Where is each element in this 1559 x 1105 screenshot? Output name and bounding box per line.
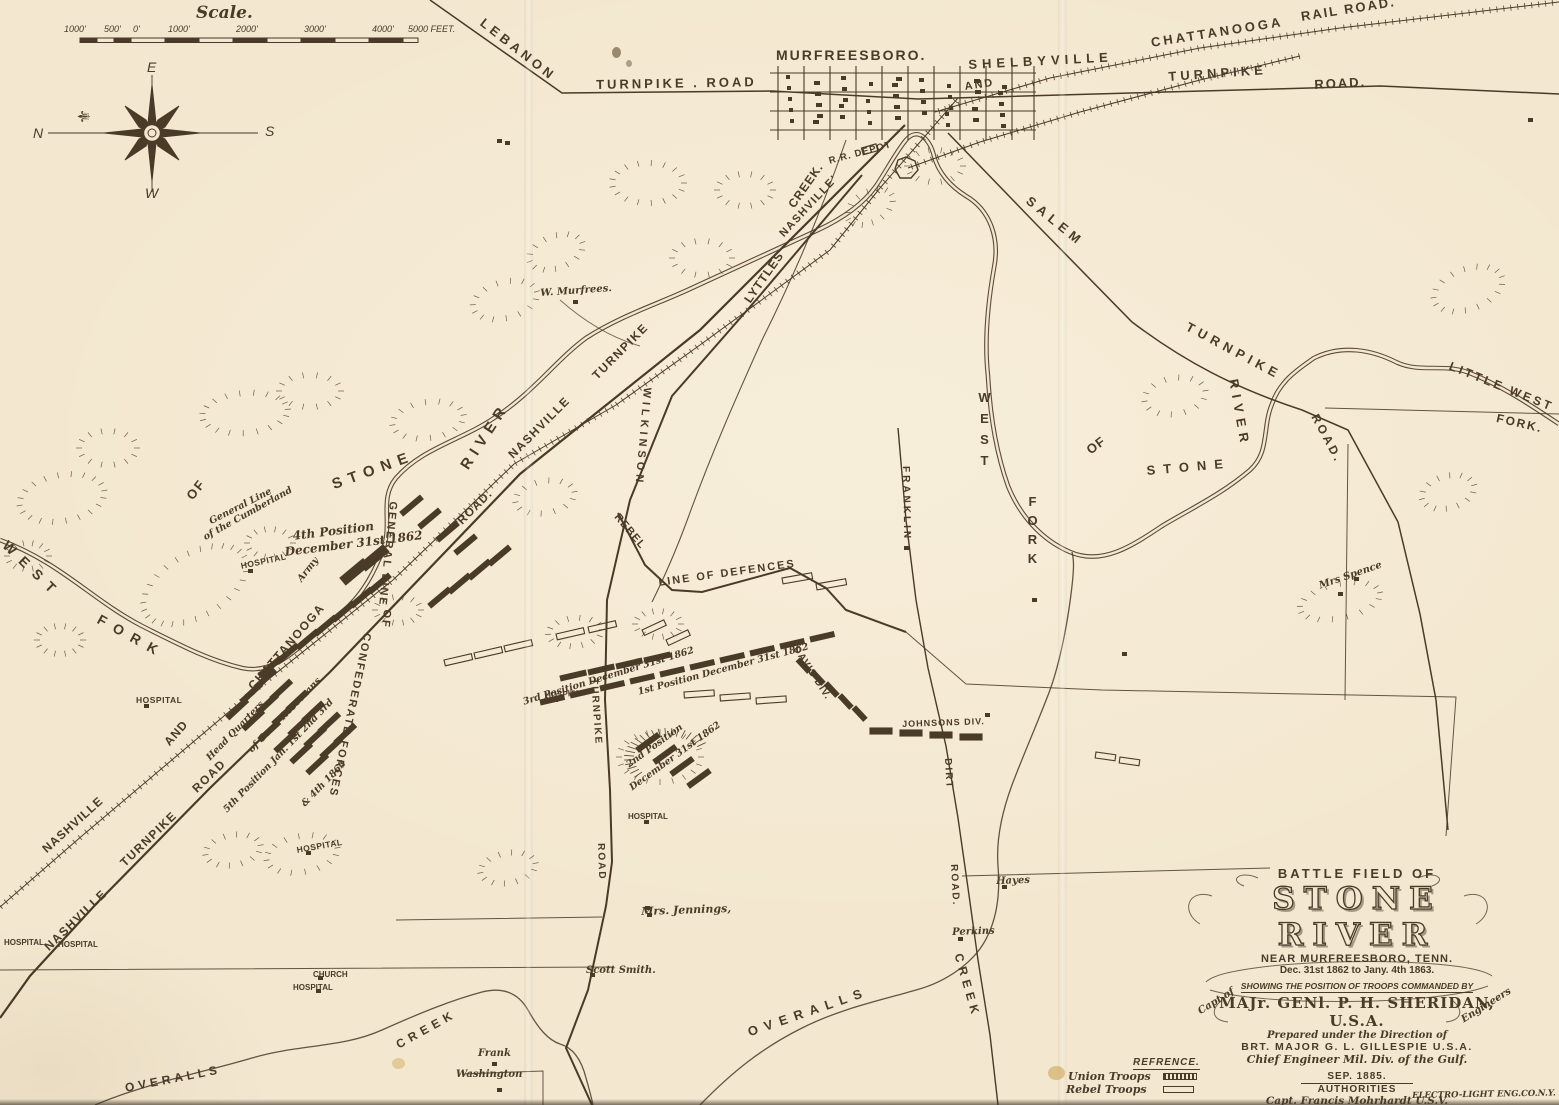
- label-turnpike-road-west: TURNPIKE . ROAD: [596, 75, 757, 91]
- engraver-credit: ELECTRO-LIGHT ENG.CO.N.Y.: [1412, 1089, 1556, 1100]
- label-franklin-road: FRANKLIN: [900, 466, 911, 541]
- map-title: STONE RIVER: [1192, 881, 1522, 953]
- label-dirt-road-1: DIRT: [942, 758, 954, 790]
- stone-river-battle-map: Scale. 1000' 500' 0' 1000' 2000' 3000' 4…: [0, 0, 1559, 1105]
- compass-rose: [48, 75, 258, 192]
- label-west-fork-right-2: FORK: [1026, 494, 1039, 570]
- title-chief-engineer: Chief Engineer Mil. Div. of the Gulf.: [1192, 1053, 1522, 1066]
- scale-bar-drawing: [80, 38, 418, 43]
- title-prepared: Prepared under the Direction of: [1192, 1030, 1522, 1041]
- legend-title: REFRENCE.: [1133, 1058, 1200, 1070]
- label-shelby-road: ROAD.: [1314, 75, 1366, 91]
- scale-tick: 0': [133, 25, 140, 34]
- label-frank-washington-1: Frank: [478, 1049, 511, 1059]
- label-hospital: HOSPITAL: [293, 984, 333, 992]
- label-hospital: HOSPITAL: [4, 939, 44, 947]
- scale-tick: 3000': [304, 25, 326, 34]
- label-hospital: HOSPITAL: [58, 941, 98, 949]
- scale-tick: 500': [104, 25, 121, 34]
- label-murfreesboro: MURFREESBORO.: [776, 48, 926, 62]
- scale-title: Scale.: [196, 5, 253, 22]
- compass-west-label: W: [145, 186, 158, 200]
- label-frank-washington-2: Washington: [456, 1070, 522, 1080]
- label-scott-smith-house: Scott Smith.: [586, 966, 656, 976]
- legend-rebel-label: Rebel Troops: [1066, 1084, 1147, 1095]
- scale-tick: 2000': [236, 25, 258, 34]
- compass-south-label: S: [265, 124, 274, 138]
- murfreesboro-town-grid: [770, 66, 1036, 140]
- legend-rebel-troops-swatch: [1163, 1086, 1194, 1093]
- label-dirt-road-2: ROAD.: [948, 864, 960, 907]
- scale-tick: 5000 FEET.: [408, 25, 455, 34]
- scale-tick: 4000': [372, 25, 394, 34]
- title-near: NEAR MURFREESBORO, TENN.: [1192, 953, 1522, 965]
- title-line1: BATTLE FIELD OF: [1192, 866, 1522, 881]
- fleur-de-lis-icon: ⚜: [76, 109, 93, 124]
- label-church: CHURCH: [313, 971, 348, 979]
- railroads: [0, 0, 1559, 909]
- label-perkins-house: Perkins: [952, 927, 995, 938]
- title-date: SEP. 1885.: [1301, 1071, 1412, 1084]
- legend-union-label: Union Troops: [1068, 1071, 1151, 1082]
- title-major: BRT. MAJOR G. L. GILLESPIE U.S.A.: [1192, 1041, 1522, 1053]
- label-mrs-jennings-house: Mrs. Jennings,: [641, 903, 731, 917]
- label-hospital: HOSPITAL: [628, 813, 668, 821]
- compass-north-label: N: [33, 126, 43, 140]
- label-west-fork-right-1: WEST: [978, 390, 991, 474]
- title-dates: Dec. 31st 1862 to Jany. 4th 1863.: [1192, 965, 1522, 976]
- scale-tick: 1000': [64, 25, 86, 34]
- title-block: BATTLE FIELD OF STONE RIVER NEAR MURFREE…: [1192, 866, 1522, 1105]
- label-hospital: HOSPITAL: [136, 696, 182, 705]
- label-hayes-house: Hayes: [996, 876, 1030, 887]
- label-confederate-line-2: OF: [379, 609, 392, 629]
- compass-east-label: E: [147, 60, 156, 74]
- label-wilkinson-road: ROAD: [595, 843, 606, 881]
- scale-tick: 1000': [168, 25, 190, 34]
- title-showing: SHOWING THE POSITION OF TROOPS COMMANDED…: [1241, 981, 1474, 993]
